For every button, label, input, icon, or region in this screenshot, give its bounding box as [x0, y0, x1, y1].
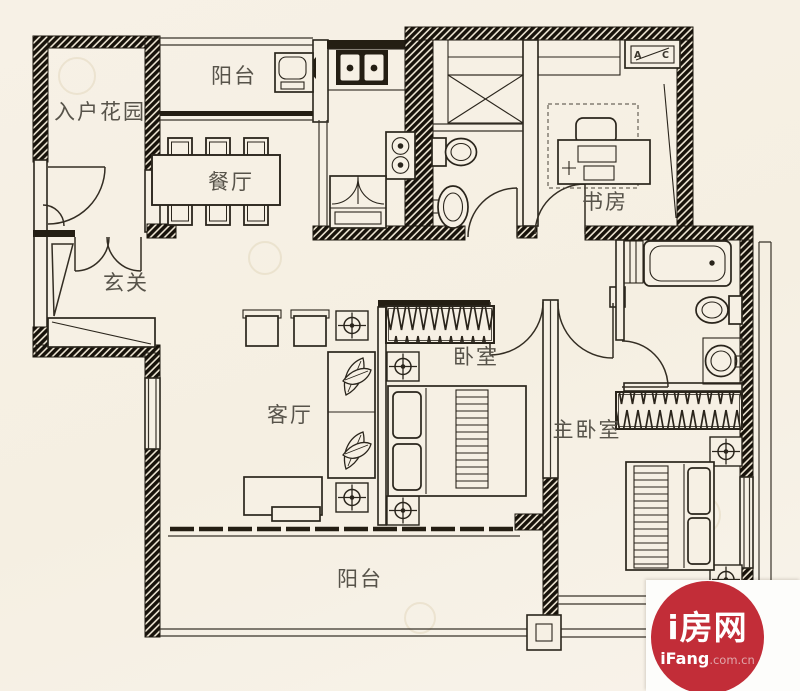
room-label-dining: 餐厅 [208, 170, 254, 194]
wall-bedroom-corner [515, 514, 543, 530]
ifang-logo-circle: i房网 iFang.com.cn [651, 581, 764, 691]
bath1-door [468, 188, 517, 237]
wall-bath-study [523, 40, 538, 226]
wall-garden-right [145, 38, 160, 172]
sofa-plant-stand [328, 352, 375, 478]
ac-label-a: A [634, 50, 642, 61]
study-curtain-line [664, 84, 676, 218]
study-door [535, 184, 585, 234]
refrigerator [330, 176, 386, 228]
wall-stub-bath-study [517, 226, 537, 238]
room-label-entry-garden: 入户花园 [54, 100, 146, 124]
master-bathroom [624, 241, 742, 384]
wall-living-left-a [145, 353, 160, 380]
ac-unit: A C [625, 40, 680, 68]
wall-balcony-kitchen [313, 40, 328, 122]
dining-balcony-track [160, 111, 313, 116]
balcony-bench [275, 53, 313, 92]
storage-xbox [448, 75, 523, 123]
master-right-window-frame [740, 477, 753, 568]
right-ledge [759, 242, 771, 629]
bath1-closet-wall [433, 124, 523, 131]
wall-left-mid [34, 160, 47, 330]
master-suite-door [558, 303, 613, 358]
ceiling-lamp-icon [336, 311, 368, 340]
master-bed [626, 462, 714, 570]
wall-top-garden [33, 36, 160, 48]
armchair [291, 310, 329, 346]
toilet-1 [432, 138, 477, 166]
living-left-window-frame [145, 378, 160, 449]
foyer-door-right [107, 237, 141, 271]
room-label-bedroom: 卧室 [453, 345, 499, 369]
balcony-top-rail [160, 38, 313, 45]
wall-kitchen-top [327, 40, 408, 49]
shower-cabinet [624, 241, 643, 283]
ifang-logo: i房网 iFang.com.cn [646, 580, 800, 691]
balcony-bottom-rail [160, 629, 548, 636]
armchair [243, 310, 281, 346]
wall-living-left-b [145, 447, 160, 637]
ifang-logo-site: iFang.com.cn [660, 651, 755, 667]
toilet-master [696, 296, 742, 324]
main-entry-door-leaf [52, 244, 73, 316]
master-wardrobe [616, 392, 742, 429]
room-label-living: 客厅 [267, 403, 313, 427]
entry-garden-door-arc [48, 167, 105, 224]
master-bath-door [622, 341, 668, 387]
wall-garden-south [33, 230, 75, 237]
room-label-master-bedroom: 主卧室 [553, 418, 622, 442]
floor-plan-page: A C [0, 0, 800, 691]
ifang-site-name: iFang [660, 649, 709, 668]
wall-mbath-top [585, 226, 753, 240]
sink-master [703, 338, 742, 384]
foyer-door-left [75, 237, 109, 271]
kitchen-sliding-door [319, 120, 327, 226]
balcony-pillar [527, 615, 561, 650]
wall-mbath-left [616, 240, 624, 340]
tv-cabinet [244, 477, 322, 521]
sink-1 [433, 186, 468, 228]
ceiling-lamp-icon [387, 496, 419, 525]
kitchen-stove [386, 132, 415, 179]
ifang-logo-brand: i房网 [667, 611, 747, 644]
ceiling-lamp-icon [336, 483, 368, 512]
ceiling-lamp-icon [387, 352, 419, 381]
ac-label-c: C [662, 50, 669, 61]
ifang-site-tld: .com.cn [709, 653, 754, 667]
room-label-foyer: 玄关 [103, 271, 149, 295]
kitchen-sink-unit [336, 50, 388, 85]
bedroom-wardrobe [386, 306, 494, 343]
room-label-balcony-bottom: 阳台 [337, 567, 383, 591]
wall-stub-dining [147, 224, 176, 238]
bathtub [644, 241, 731, 286]
room-label-balcony-top: 阳台 [211, 64, 257, 88]
kitchen [328, 49, 415, 228]
wall-top-main [405, 27, 693, 40]
bedroom-bed [388, 386, 526, 496]
room-label-study: 书房 [582, 190, 628, 214]
wall-bedroom-living [378, 307, 386, 525]
foyer-shoe-cabinet [48, 318, 155, 347]
wall-left-upper [33, 36, 48, 162]
